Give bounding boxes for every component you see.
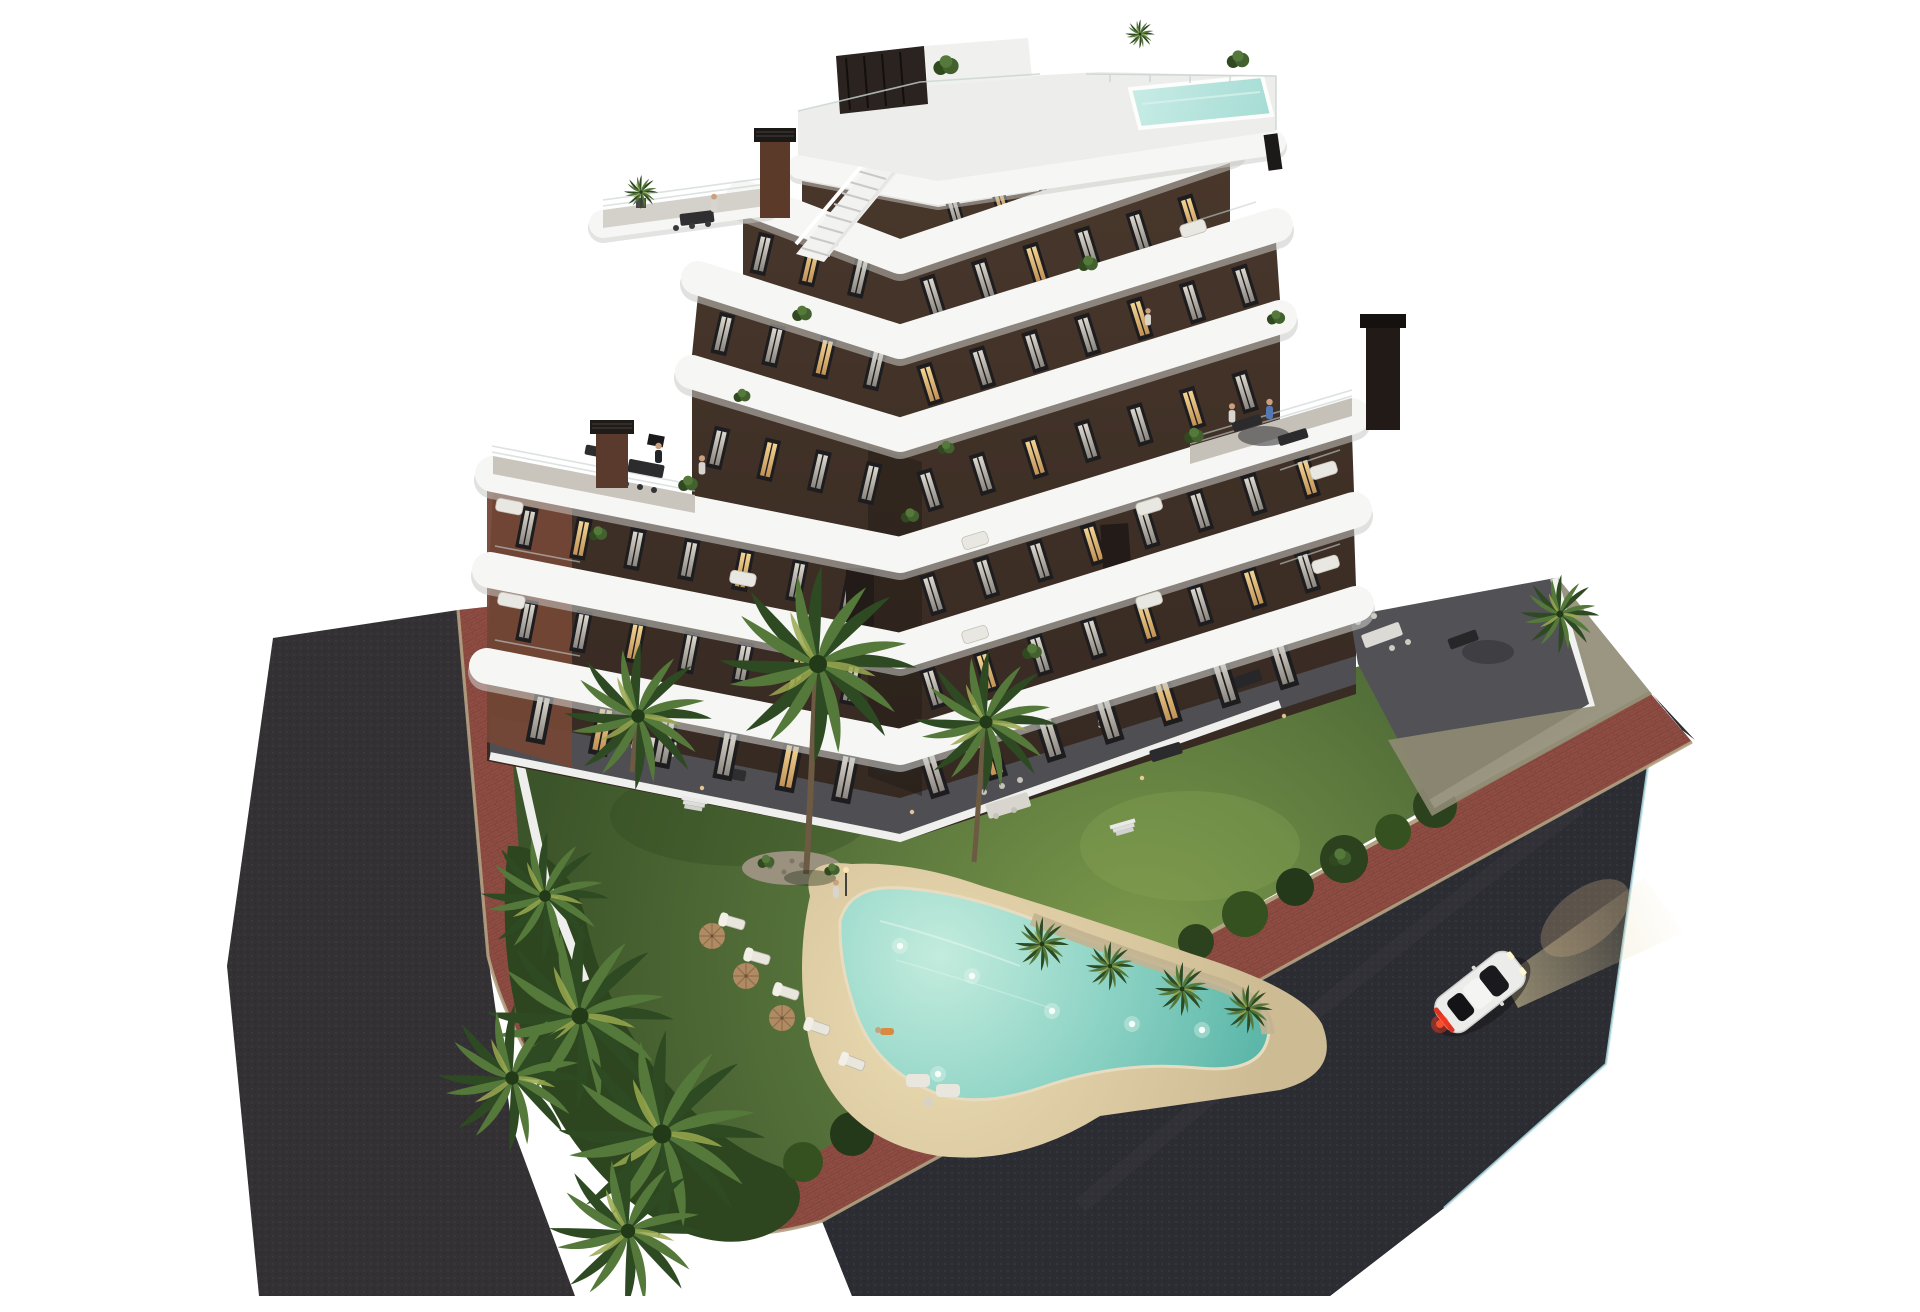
chimney-left bbox=[590, 420, 634, 488]
person-balcony bbox=[1145, 308, 1151, 325]
person-penthouse bbox=[711, 194, 717, 212]
render-canvas bbox=[40, 16, 1920, 1296]
person-terrace-left-1 bbox=[655, 443, 662, 463]
person-terrace-right-2 bbox=[1266, 399, 1273, 419]
chimney-roof-left bbox=[754, 128, 796, 218]
person-terrace-left-2 bbox=[699, 455, 706, 474]
chimney-right bbox=[1360, 314, 1406, 430]
person-poolside bbox=[833, 880, 839, 898]
architectural-render bbox=[40, 16, 1920, 1296]
rooftop-pergola bbox=[836, 46, 928, 114]
person-terrace-right-1 bbox=[1229, 403, 1236, 422]
